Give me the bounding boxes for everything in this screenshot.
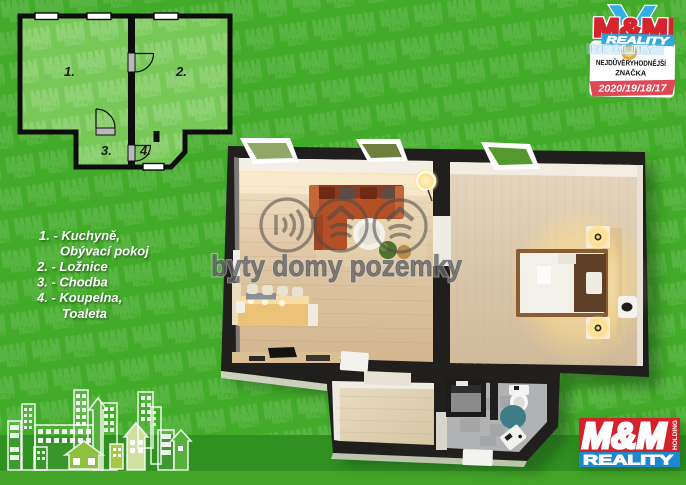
svg-text:NEJDŮVĚRYHODNĚJŠÍ: NEJDŮVĚRYHODNĚJŠÍ bbox=[596, 57, 667, 68]
svg-text:HOLDING: HOLDING bbox=[672, 420, 679, 450]
svg-text:M&M: M&M bbox=[582, 415, 667, 456]
svg-text:3.: 3. bbox=[101, 143, 112, 158]
svg-text:1. - Kuchyně,: 1. - Kuchyně, bbox=[39, 228, 120, 243]
svg-text:2.: 2. bbox=[175, 64, 187, 79]
svg-text:1.: 1. bbox=[64, 64, 75, 79]
svg-text:REALITY: REALITY bbox=[583, 452, 674, 468]
svg-text:2. - Ložnice: 2. - Ložnice bbox=[36, 259, 108, 274]
svg-text:byty domy pozemky: byty domy pozemky bbox=[211, 250, 462, 283]
svg-text:3. - Chodba: 3. - Chodba bbox=[37, 275, 108, 290]
svg-text:Toaleta: Toaleta bbox=[62, 306, 107, 321]
svg-text:REALITY: REALITY bbox=[589, 42, 655, 57]
svg-text:4. - Koupelna,: 4. - Koupelna, bbox=[36, 290, 122, 305]
svg-text:Obývací pokoj: Obývací pokoj bbox=[60, 244, 149, 259]
svg-text:ZNAČKA: ZNAČKA bbox=[615, 68, 647, 78]
svg-text:4.: 4. bbox=[139, 143, 151, 158]
svg-text:2020/19/18/17: 2020/19/18/17 bbox=[597, 83, 667, 95]
